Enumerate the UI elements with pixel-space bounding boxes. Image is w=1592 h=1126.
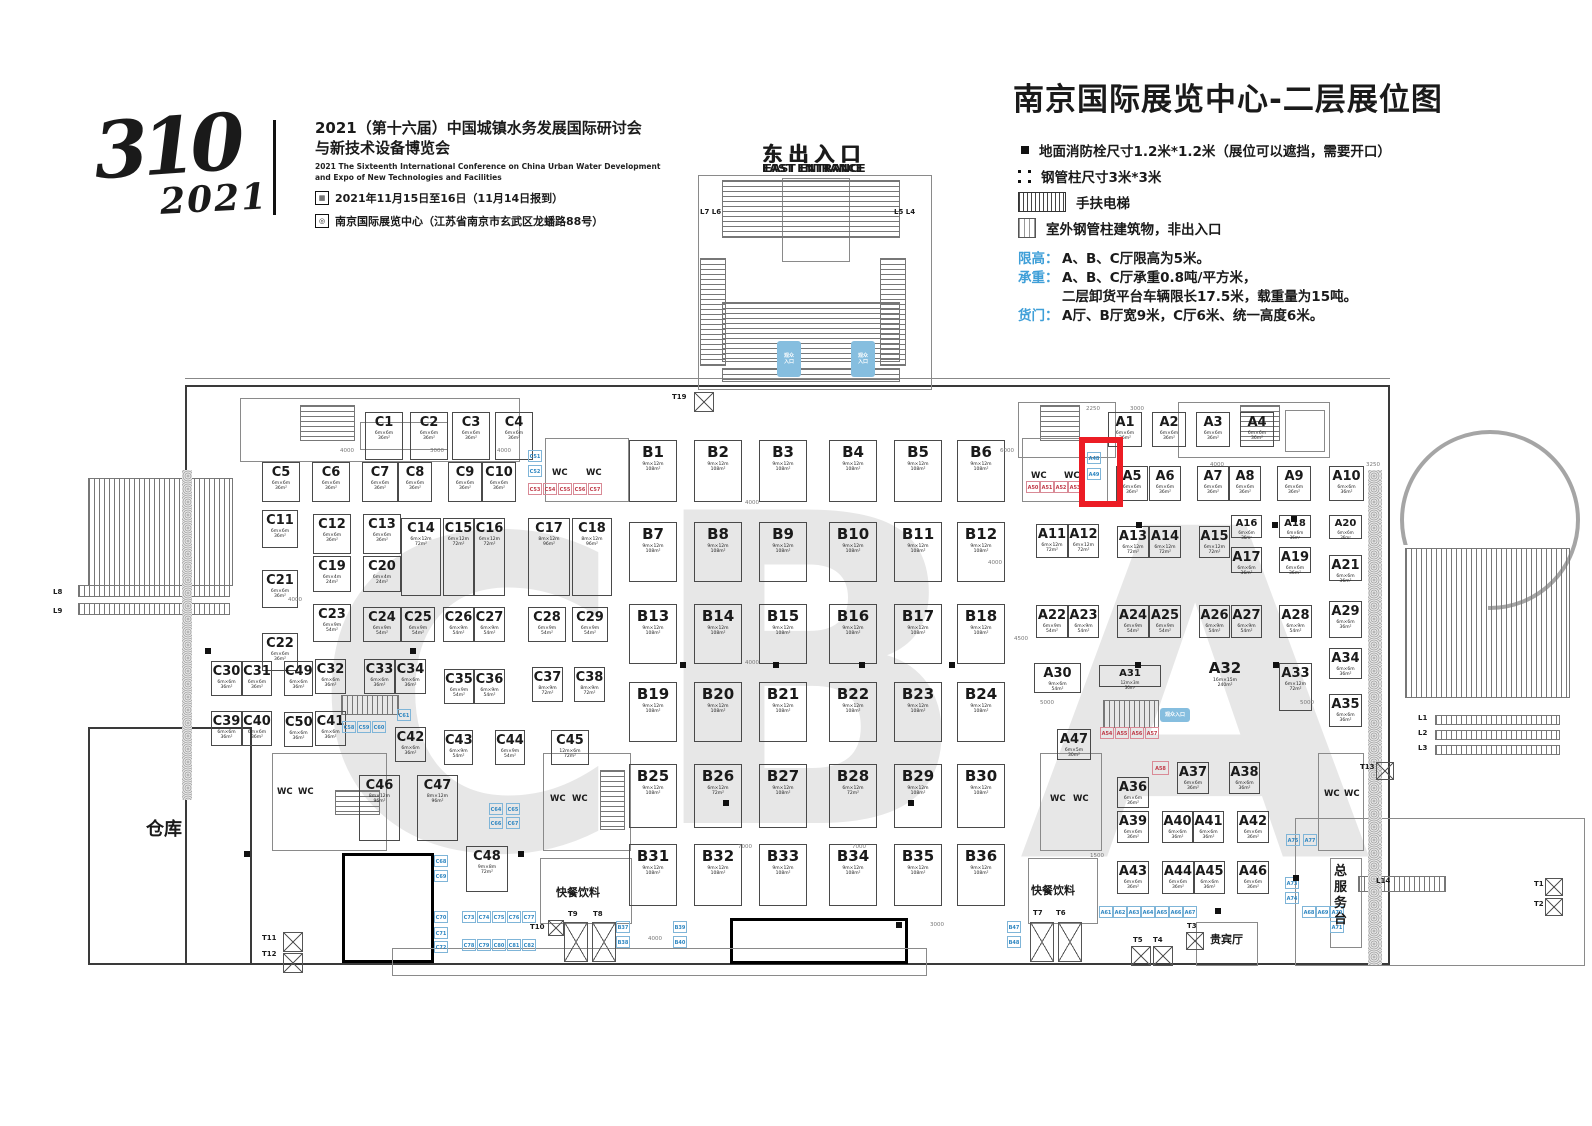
booth-A34: A346m×6m 36m² bbox=[1329, 648, 1362, 679]
booth-C53: C53 bbox=[528, 483, 542, 495]
booth-B27: B279m×12m 108m² bbox=[759, 764, 807, 828]
label-L1: L1 bbox=[1418, 714, 1427, 722]
booth-C80: C80 bbox=[492, 939, 506, 951]
booth-C36: C366m×9m 54m² bbox=[474, 669, 505, 704]
booth-C55: C55 bbox=[558, 483, 572, 495]
booth-B28: B286m×12m 72m² bbox=[829, 764, 877, 828]
dim-mark: 7000 bbox=[738, 844, 752, 850]
structure-sv bbox=[1435, 715, 1560, 725]
label-快餐饮料: 快餐饮料 bbox=[556, 884, 600, 900]
label-T2: T2 bbox=[1534, 900, 1544, 908]
booth-A62: A62 bbox=[1113, 906, 1127, 918]
booth-A74: A74 bbox=[1285, 892, 1299, 904]
fire-hydrant-mark bbox=[1135, 662, 1141, 668]
booth-B30: B309m×12m 108m² bbox=[957, 764, 1005, 828]
booth-C60: C60 bbox=[372, 721, 386, 733]
dim-mark: 3000 bbox=[930, 922, 944, 928]
dim-mark: 4000 bbox=[648, 936, 662, 942]
booth-A25: A256m×9m 54m² bbox=[1149, 605, 1181, 638]
booth-A16: A166m×6m 36m² bbox=[1231, 515, 1262, 538]
booth-C14: C146m×12m 72m² bbox=[401, 518, 441, 596]
label-仓库: 仓库 bbox=[146, 815, 182, 841]
dim-mark: 4500 bbox=[1014, 636, 1028, 642]
dim-mark: 4000 bbox=[497, 448, 511, 454]
booth-C42: C426m×6m 36m² bbox=[395, 727, 426, 762]
booth-C33: C336m×6m 36m² bbox=[364, 659, 395, 694]
booth-C67: C67 bbox=[506, 817, 520, 829]
booth-B19: B199m×12m 108m² bbox=[629, 682, 677, 742]
booth-C12: C126m×6m 36m² bbox=[313, 514, 351, 554]
booth-B24: B249m×12m 108m² bbox=[957, 682, 1005, 742]
elevator-box bbox=[1186, 932, 1204, 950]
booth-A24: A246m×9m 54m² bbox=[1117, 605, 1149, 638]
booth-A65: A65 bbox=[1155, 906, 1169, 918]
booth-A75: A75 bbox=[1286, 834, 1300, 846]
booth-C49: C496m×6m 36m² bbox=[284, 661, 313, 696]
elevator-box bbox=[548, 920, 564, 936]
booth-C39: C396m×6m 36m² bbox=[211, 711, 242, 746]
floorplan-map: CBAC16m×6m 36m²C26m×6m 36m²C36m×6m 36m²C… bbox=[0, 0, 1592, 1126]
label-L8: L8 bbox=[53, 588, 62, 596]
fire-hydrant-mark bbox=[773, 662, 779, 668]
booth-B20: B209m×12m 108m² bbox=[694, 682, 742, 742]
booth-C70: C70 bbox=[434, 911, 448, 923]
booth-C15: C156m×12m 72m² bbox=[443, 518, 474, 596]
booth-C5: C56m×6m 36m² bbox=[262, 462, 300, 502]
booth-A68: A68 bbox=[1302, 906, 1316, 918]
fire-hydrant-mark bbox=[949, 662, 955, 668]
booth-C10: C106m×6m 36m² bbox=[482, 462, 516, 502]
label-L3: L3 bbox=[1418, 744, 1427, 752]
booth-A8: A86m×6m 36m² bbox=[1229, 466, 1261, 501]
entrance-flag: 观众 入口 bbox=[777, 341, 801, 377]
booth-A12: A126m×12m 72m² bbox=[1068, 524, 1099, 558]
label-总服务台: 总 服 务 台 bbox=[1334, 864, 1350, 928]
label-T10: T10 bbox=[530, 923, 545, 931]
label-WC: WC bbox=[1324, 789, 1340, 799]
booth-B6: B69m×12m 108m² bbox=[957, 440, 1005, 502]
booth-C28: C286m×9m 54m² bbox=[528, 607, 566, 642]
fire-hydrant-mark bbox=[518, 851, 524, 857]
booth-C29: C296m×9m 54m² bbox=[572, 607, 608, 642]
label-WC: WC bbox=[572, 794, 588, 804]
structure-w1 bbox=[392, 948, 927, 976]
booth-A67: A67 bbox=[1183, 906, 1197, 918]
dim-mark: 7000 bbox=[852, 844, 866, 850]
label-T1: T1 bbox=[1534, 880, 1544, 888]
booth-B22: B229m×12m 108m² bbox=[829, 682, 877, 742]
booth-B13: B139m×12m 108m² bbox=[629, 604, 677, 664]
booth-C35: C356m×9m 54m² bbox=[444, 669, 474, 704]
booth-B47: B47 bbox=[1007, 921, 1021, 933]
booth-B33: B339m×12m 108m² bbox=[759, 844, 807, 906]
booth-B16: B169m×12m 108m² bbox=[829, 604, 877, 664]
booth-B11: B119m×12m 108m² bbox=[894, 522, 942, 582]
booth-A46: A466m×6m 36m² bbox=[1237, 861, 1269, 894]
elevator-box bbox=[283, 932, 303, 952]
label-T5: T5 bbox=[1133, 936, 1143, 944]
booth-B40: B40 bbox=[673, 936, 687, 948]
booth-A51: A51 bbox=[1040, 481, 1054, 493]
booth-A36: A366m×6m 36m² bbox=[1117, 777, 1149, 808]
dim-mark: 4000 bbox=[745, 660, 759, 666]
booth-C24: C246m×9m 54m² bbox=[363, 607, 401, 642]
fire-hydrant-mark bbox=[859, 662, 865, 668]
elevator-box bbox=[694, 392, 714, 412]
booth-C40: C406m×6m 36m² bbox=[242, 711, 272, 746]
booth-A4: A46m×6m 36m² bbox=[1240, 412, 1274, 447]
structure-sv bbox=[1103, 700, 1159, 728]
booth-A20: A206m×6m 36m² bbox=[1329, 515, 1362, 539]
booth-A63: A63 bbox=[1127, 906, 1141, 918]
label-WC: WC bbox=[1031, 471, 1047, 481]
booth-C18: C188m×12m 96m² bbox=[572, 518, 612, 596]
booth-C13: C136m×6m 36m² bbox=[363, 514, 401, 554]
booth-A50: A50 bbox=[1026, 481, 1040, 493]
structure-sv bbox=[1435, 730, 1560, 740]
booth-B14: B149m×12m 108m² bbox=[694, 604, 742, 664]
booth-A39: A396m×6m 36m² bbox=[1117, 811, 1149, 843]
booth-B34: B349m×12m 108m² bbox=[829, 844, 877, 906]
booth-C44: C446m×9m 54m² bbox=[495, 730, 525, 765]
booth-B21: B219m×12m 108m² bbox=[759, 682, 807, 742]
elevator-box bbox=[283, 953, 303, 973]
structure-dark bbox=[342, 853, 434, 963]
booth-B26: B266m×12m 72m² bbox=[694, 764, 742, 828]
structure-sh bbox=[722, 180, 900, 238]
booth-C66: C66 bbox=[489, 817, 503, 829]
booth-B23: B239m×12m 108m² bbox=[894, 682, 942, 742]
booth-C8: C86m×6m 36m² bbox=[398, 462, 432, 502]
booth-B5: B59m×12m 108m² bbox=[894, 440, 942, 502]
label-WC: WC bbox=[277, 787, 293, 797]
dim-mark: 6000 bbox=[1000, 448, 1014, 454]
booth-C23: C236m×9m 54m² bbox=[313, 604, 351, 642]
booth-C75: C75 bbox=[492, 911, 506, 923]
highlight-booth-A48-A49 bbox=[1079, 437, 1123, 507]
elevator-box bbox=[1058, 922, 1082, 962]
label-T13: T13 bbox=[1360, 763, 1375, 771]
booth-B3: B39m×12m 108m² bbox=[759, 440, 807, 502]
booth-A38: A386m×6m 36m² bbox=[1229, 762, 1260, 794]
booth-B18: B189m×12m 108m² bbox=[957, 604, 1005, 664]
elevator-box bbox=[564, 922, 588, 962]
booth-A23: A236m×9m 54m² bbox=[1068, 605, 1099, 638]
elevator-box bbox=[1030, 922, 1054, 962]
booth-A14: A146m×12m 72m² bbox=[1149, 526, 1181, 558]
elevator-box bbox=[1153, 946, 1173, 966]
booth-C27: C276m×9m 54m² bbox=[474, 607, 505, 642]
fire-hydrant-mark bbox=[1136, 522, 1142, 528]
label-T9: T9 bbox=[568, 910, 578, 918]
booth-C56: C56 bbox=[573, 483, 587, 495]
structure-scallop bbox=[1368, 470, 1382, 965]
booth-C17: C178m×12m 96m² bbox=[528, 518, 570, 596]
booth-A66: A66 bbox=[1169, 906, 1183, 918]
label-WC: WC bbox=[1064, 471, 1080, 481]
booth-A58: A58 bbox=[1152, 761, 1169, 775]
dim-mark: 3000 bbox=[1130, 406, 1144, 412]
booth-C3: C36m×6m 36m² bbox=[452, 412, 490, 460]
label-WC: WC bbox=[550, 794, 566, 804]
booth-A43: A436m×6m 36m² bbox=[1117, 861, 1149, 894]
booth-C51: C51 bbox=[528, 450, 542, 462]
booth-C26: C266m×9m 54m² bbox=[443, 607, 474, 642]
booth-C81: C81 bbox=[507, 939, 521, 951]
structure-w1 bbox=[1285, 410, 1325, 452]
booth-A69: A69 bbox=[1316, 906, 1330, 918]
structure-sv bbox=[341, 695, 399, 715]
booth-C68: C68 bbox=[434, 855, 448, 867]
booth-A11: A116m×12m 72m² bbox=[1036, 524, 1068, 558]
label-WC: WC bbox=[552, 468, 568, 478]
dim-mark: 4000 bbox=[340, 448, 354, 454]
fire-hydrant-mark bbox=[244, 851, 250, 857]
dim-mark: 4000 bbox=[1210, 462, 1224, 468]
elevator-box bbox=[1545, 898, 1563, 916]
booth-A61: A61 bbox=[1099, 906, 1113, 918]
structure-sv bbox=[78, 603, 230, 615]
booth-C31: C316m×6m 36m² bbox=[242, 661, 272, 696]
dim-mark: 5000 bbox=[1040, 700, 1054, 706]
booth-C32: C326m×6m 36m² bbox=[315, 659, 346, 694]
booth-C1: C16m×6m 36m² bbox=[365, 412, 403, 460]
label-快餐饮料: 快餐饮料 bbox=[1031, 882, 1075, 898]
label-T8: T8 bbox=[593, 910, 603, 918]
label-L9: L9 bbox=[53, 607, 62, 615]
booth-B2: B29m×12m 108m² bbox=[694, 440, 742, 502]
booth-C34: C346m×6m 36m² bbox=[395, 659, 426, 694]
booth-A9: A96m×6m 36m² bbox=[1277, 466, 1311, 501]
fire-hydrant-mark bbox=[1293, 875, 1299, 881]
label-T19: T19 bbox=[672, 393, 687, 401]
booth-A77: A77 bbox=[1303, 834, 1317, 846]
floorplan-page: 310 2021 2021（第十六届）中国城镇水务发展国际研讨会 与新技术设备博… bbox=[0, 0, 1592, 1126]
booth-A27: A276m×9m 54m² bbox=[1231, 605, 1262, 638]
booth-C50: C506m×6m 36m² bbox=[284, 712, 313, 747]
booth-C59: C59 bbox=[357, 721, 371, 733]
booth-C43: C436m×9m 54m² bbox=[444, 730, 473, 765]
booth-C65: C65 bbox=[506, 803, 520, 815]
dim-mark: 2250 bbox=[1086, 406, 1100, 412]
booth-C37: C378m×9m 72m² bbox=[532, 667, 563, 702]
booth-B4: B49m×12m 108m² bbox=[829, 440, 877, 502]
label-WC: WC bbox=[586, 468, 602, 478]
booth-C19: C196m×4m 24m² bbox=[313, 556, 351, 592]
booth-C72: C72 bbox=[434, 941, 448, 953]
label-T4: T4 bbox=[1153, 936, 1163, 944]
booth-C9: C96m×6m 36m² bbox=[448, 462, 482, 502]
booth-A32: A3216m×15m 240m² bbox=[1163, 657, 1287, 745]
booth-C82: C82 bbox=[522, 939, 536, 951]
fire-hydrant-mark bbox=[1215, 908, 1221, 914]
booth-B17: B179m×12m 108m² bbox=[894, 604, 942, 664]
east-entrance-label-en: EAST ENTRANCE bbox=[698, 162, 932, 175]
booth-A44: A446m×6m 36m² bbox=[1162, 861, 1194, 894]
booth-C47: C478m×12m 96m² bbox=[417, 775, 458, 841]
dim-mark: 4000 bbox=[288, 597, 302, 603]
booth-A56: A56 bbox=[1130, 727, 1144, 739]
booth-B35: B359m×12m 108m² bbox=[894, 844, 942, 906]
booth-C16: C166m×12m 72m² bbox=[474, 518, 505, 596]
booth-B7: B79m×12m 108m² bbox=[629, 522, 677, 582]
booth-A10: A106m×6m 36m² bbox=[1329, 466, 1364, 501]
booth-B38: B38 bbox=[616, 936, 630, 948]
booth-B25: B259m×12m 108m² bbox=[629, 764, 677, 828]
label-L14: L14 bbox=[1376, 877, 1390, 885]
booth-A31: A3112m×3m 36m² bbox=[1099, 665, 1161, 687]
label-L2: L2 bbox=[1418, 729, 1427, 737]
fire-hydrant-mark bbox=[1272, 522, 1278, 528]
booth-C78: C78 bbox=[462, 939, 476, 951]
structure-sv bbox=[88, 478, 233, 586]
booth-C74: C74 bbox=[477, 911, 491, 923]
label-L7L6: L7 L6 bbox=[700, 208, 721, 216]
booth-C71: C71 bbox=[434, 927, 448, 939]
dim-mark: 3000 bbox=[430, 448, 444, 454]
booth-C30: C306m×6m 36m² bbox=[211, 661, 242, 696]
label-T7: T7 bbox=[1033, 909, 1043, 917]
booth-B12: B129m×12m 108m² bbox=[957, 522, 1005, 582]
booth-B9: B99m×12m 108m² bbox=[759, 522, 807, 582]
fire-hydrant-mark bbox=[410, 648, 416, 654]
label-WC: WC bbox=[1073, 794, 1089, 804]
fire-hydrant-mark bbox=[908, 800, 914, 806]
booth-B1: B19m×12m 108m² bbox=[629, 440, 677, 502]
booth-A41: A416m×6m 36m² bbox=[1193, 811, 1224, 843]
booth-C25: C256m×9m 54m² bbox=[401, 607, 435, 642]
dim-mark: 4000 bbox=[988, 560, 1002, 566]
label-贵宾厅: 贵宾厅 bbox=[1210, 931, 1243, 947]
booth-A42: A426m×6m 36m² bbox=[1237, 811, 1269, 843]
structure-sv bbox=[1435, 745, 1560, 755]
label-L5L4: L5 L4 bbox=[894, 208, 915, 216]
label-WC: WC bbox=[298, 787, 314, 797]
booth-C6: C66m×6m 36m² bbox=[312, 462, 350, 502]
elevator-box bbox=[1376, 762, 1394, 780]
booth-A7: A76m×6m 36m² bbox=[1197, 466, 1229, 501]
booth-C48: C489m×8m 72m² bbox=[466, 846, 508, 892]
booth-C20: C206m×4m 24m² bbox=[363, 556, 401, 592]
booth-C58: C58 bbox=[342, 721, 356, 733]
booth-C69: C69 bbox=[434, 870, 448, 882]
booth-C38: C388m×9m 72m² bbox=[574, 667, 605, 702]
elevator-box bbox=[1545, 878, 1563, 896]
booth-A52: A52 bbox=[1054, 481, 1068, 493]
fire-hydrant-mark bbox=[205, 648, 211, 654]
booth-C52: C52 bbox=[528, 465, 542, 477]
booth-A15: A156m×12m 72m² bbox=[1199, 526, 1230, 558]
fire-hydrant-mark bbox=[1273, 662, 1279, 668]
booth-C79: C79 bbox=[477, 939, 491, 951]
label-T12: T12 bbox=[262, 950, 277, 958]
elevator-box bbox=[592, 922, 616, 962]
label-T3: T3 bbox=[1187, 922, 1197, 930]
booth-C73: C73 bbox=[462, 911, 476, 923]
label-WC: WC bbox=[1344, 789, 1360, 799]
label-WC: WC bbox=[1050, 794, 1066, 804]
booth-A64: A64 bbox=[1141, 906, 1155, 918]
fire-hydrant-mark bbox=[896, 922, 902, 928]
structure-sv bbox=[78, 585, 230, 597]
booth-A57: A57 bbox=[1145, 727, 1159, 739]
label-T6: T6 bbox=[1056, 909, 1066, 917]
booth-C61: C61 bbox=[397, 709, 411, 721]
booth-C46: C468m×12m 96m² bbox=[359, 775, 400, 841]
label-T11: T11 bbox=[262, 934, 277, 942]
booth-C77: C77 bbox=[522, 911, 536, 923]
booth-A28: A286m×9m 54m² bbox=[1279, 605, 1312, 638]
structure-sv bbox=[1405, 548, 1570, 698]
booth-C7: C76m×6m 36m² bbox=[362, 462, 398, 502]
booth-A22: A226m×9m 54m² bbox=[1036, 605, 1068, 638]
dim-mark: 5000 bbox=[1300, 700, 1314, 706]
booth-A2: A26m×6m 36m² bbox=[1152, 412, 1186, 447]
booth-C57: C57 bbox=[588, 483, 602, 495]
fire-hydrant-mark bbox=[1291, 516, 1297, 522]
booth-A35: A356m×6m 36m² bbox=[1329, 694, 1362, 727]
fire-hydrant-mark bbox=[723, 800, 729, 806]
dim-mark: 1500 bbox=[1090, 853, 1104, 859]
booth-A29: A296m×6m 36m² bbox=[1329, 601, 1362, 638]
booth-C76: C76 bbox=[507, 911, 521, 923]
entrance-flag: 观众入口 bbox=[1160, 708, 1190, 722]
booth-A26: A266m×9m 54m² bbox=[1199, 605, 1230, 638]
booth-B36: B369m×12m 108m² bbox=[957, 844, 1005, 906]
dim-mark: 4000 bbox=[745, 500, 759, 506]
booth-C45: C4512m×6m 72m² bbox=[551, 730, 589, 765]
booth-A3: A36m×6m 36m² bbox=[1196, 412, 1230, 447]
booth-B29: B299m×12m 108m² bbox=[894, 764, 942, 828]
structure-sh bbox=[1040, 405, 1080, 441]
booth-B15: B159m×12m 108m² bbox=[759, 604, 807, 664]
booth-A40: A406m×6m 36m² bbox=[1162, 811, 1193, 843]
fire-hydrant-mark bbox=[680, 662, 686, 668]
booth-C54: C54 bbox=[543, 483, 557, 495]
booth-A30: A309m×6m 54m² bbox=[1034, 663, 1081, 693]
structure-scallop bbox=[182, 470, 192, 800]
booth-B39: B39 bbox=[673, 921, 687, 933]
booth-A37: A376m×6m 36m² bbox=[1177, 762, 1209, 794]
booth-B32: B329m×12m 108m² bbox=[694, 844, 742, 906]
booth-B31: B319m×12m 108m² bbox=[629, 844, 677, 906]
booth-A19: A196m×6m 36m² bbox=[1279, 547, 1311, 573]
booth-B8: B89m×12m 108m² bbox=[694, 522, 742, 582]
booth-A55: A55 bbox=[1115, 727, 1129, 739]
booth-A54: A54 bbox=[1100, 727, 1114, 739]
booth-C11: C116m×6m 36m² bbox=[262, 510, 298, 548]
booth-A21: A216m×6m 36m² bbox=[1329, 555, 1362, 581]
booth-B10: B109m×12m 108m² bbox=[829, 522, 877, 582]
booth-B37: B37 bbox=[616, 921, 630, 933]
structure-w2 bbox=[88, 727, 252, 965]
structure-sh bbox=[600, 770, 625, 830]
booth-C64: C64 bbox=[489, 803, 503, 815]
booth-A13: A136m×12m 72m² bbox=[1117, 526, 1149, 558]
entrance-flag: 观众 入口 bbox=[851, 341, 875, 377]
booth-A17: A176m×6m 36m² bbox=[1231, 547, 1262, 573]
dim-mark: 3250 bbox=[1366, 462, 1380, 468]
booth-A6: A66m×6m 36m² bbox=[1149, 466, 1181, 501]
elevator-box bbox=[1131, 946, 1151, 966]
booth-A45: A456m×6m 36m² bbox=[1194, 861, 1225, 894]
structure-sh bbox=[300, 405, 355, 441]
booth-B48: B48 bbox=[1007, 936, 1021, 948]
booth-A47: A476m×5m 30m² bbox=[1057, 729, 1091, 760]
